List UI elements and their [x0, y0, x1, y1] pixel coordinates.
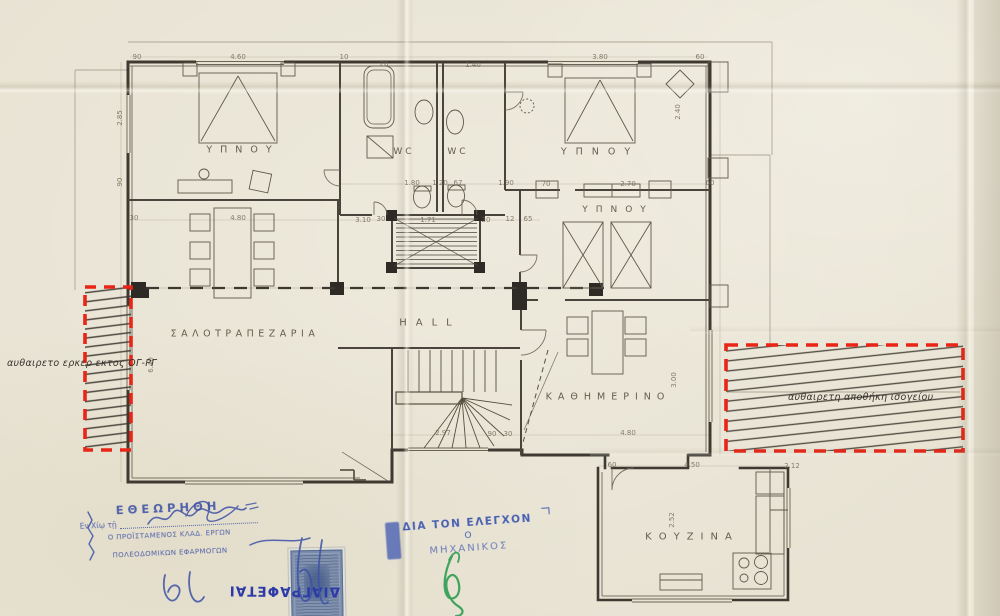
dimension-label: 3.00 [670, 372, 678, 388]
dimension-lines [121, 57, 790, 482]
room-label-daily-room: ΚΑΘΗΜΕΡΙΝΟ [546, 392, 671, 403]
dimension-label: 60 [706, 179, 715, 187]
dimension-label: 30 [377, 215, 386, 223]
dimension-label: 90 [116, 178, 124, 187]
bed-icon [183, 63, 295, 143]
stamp-cancelled-text: ΔΙΑΓΡΑΦΕΤΑΙ [224, 582, 340, 599]
dimension-label: 1.71 [420, 216, 436, 224]
revenue-stamp [288, 548, 345, 616]
kitchen-fixtures-icon [660, 468, 788, 590]
dimension-label: 60 [696, 53, 705, 61]
room-label-bedroom-top-left: ΥΠΝΟΥ [206, 145, 279, 156]
dimension-label: 4.50 [684, 461, 700, 469]
dimension-label: 2.12 [784, 462, 800, 470]
dimension-label: 1.20 [432, 179, 448, 187]
annotation-right-violation: αυθαιρετη αποθήκη ισογείου [788, 392, 933, 403]
room-label-living-dining: ΣΑΛΟΤΡΑΠΕΖΑΡΙΑ [171, 329, 320, 340]
dimension-label: 2.40 [674, 104, 682, 120]
dimension-label: 30 [504, 430, 513, 438]
annotation-left-violation: αυθαιρετο ερκερ εκτος ΟΓ-ΡΓ [7, 358, 157, 369]
dimension-label: 67 [454, 179, 463, 187]
dimension-label: 3.10 [355, 216, 371, 224]
dimension-label: 2.85 [116, 110, 124, 126]
dimension-label: 1.90 [498, 179, 514, 187]
room-label-kitchen: ΚΟΥΖΙΝΑ [645, 532, 739, 543]
dimension-label: 2.52 [668, 512, 676, 528]
dimension-label: 2.70 [620, 180, 636, 188]
dimension-label: 12 [506, 215, 515, 223]
dimension-label: 4.80 [230, 214, 246, 222]
room-label-hall: HALL [399, 318, 461, 329]
dimension-label: 20 [380, 60, 389, 68]
dimension-label: 90 [133, 53, 142, 61]
furniture [178, 62, 788, 590]
dimension-label: 20 [482, 216, 491, 224]
desk-chair-icon [178, 169, 272, 193]
dimension-label: 65 [524, 215, 533, 223]
dimension-label: 10 [340, 53, 349, 61]
dimension-label: 90 [488, 430, 497, 438]
blueprint-paper: ΥΠΝΟΥWCWCΥΠΝΟΥΥΠΝΟΥΣΑΛΟΤΡΑΠΕΖΑΡΙΑHALLΚΑΘ… [0, 0, 1000, 616]
twin-beds-icon [536, 181, 671, 288]
dimension-label: 1.40 [465, 61, 481, 69]
floor-plan-drawing [0, 0, 1000, 616]
entry-steps-icon [340, 452, 388, 481]
plot-outline-lines [75, 42, 960, 392]
stair-lower [396, 350, 558, 448]
dimension-label: 4.60 [230, 53, 246, 61]
bed-icon [520, 64, 694, 143]
room-label-wc-right: WC [447, 147, 468, 157]
room-label-wc-left: WC [393, 147, 414, 157]
daily-table-icon [567, 311, 646, 374]
dimension-label: 3.80 [592, 53, 608, 61]
room-label-bedroom-middle: ΥΠΝΟΥ [582, 205, 654, 215]
dimension-label: 2.97 [435, 429, 451, 437]
room-label-bedroom-top-right: ΥΠΝΟΥ [561, 147, 639, 158]
dimension-label: 30 [130, 214, 139, 222]
dimension-label: 70 [542, 180, 551, 188]
dimension-label: 1.80 [404, 179, 420, 187]
dimension-label: 4.80 [620, 429, 636, 437]
dimension-label: 60 [608, 461, 617, 469]
